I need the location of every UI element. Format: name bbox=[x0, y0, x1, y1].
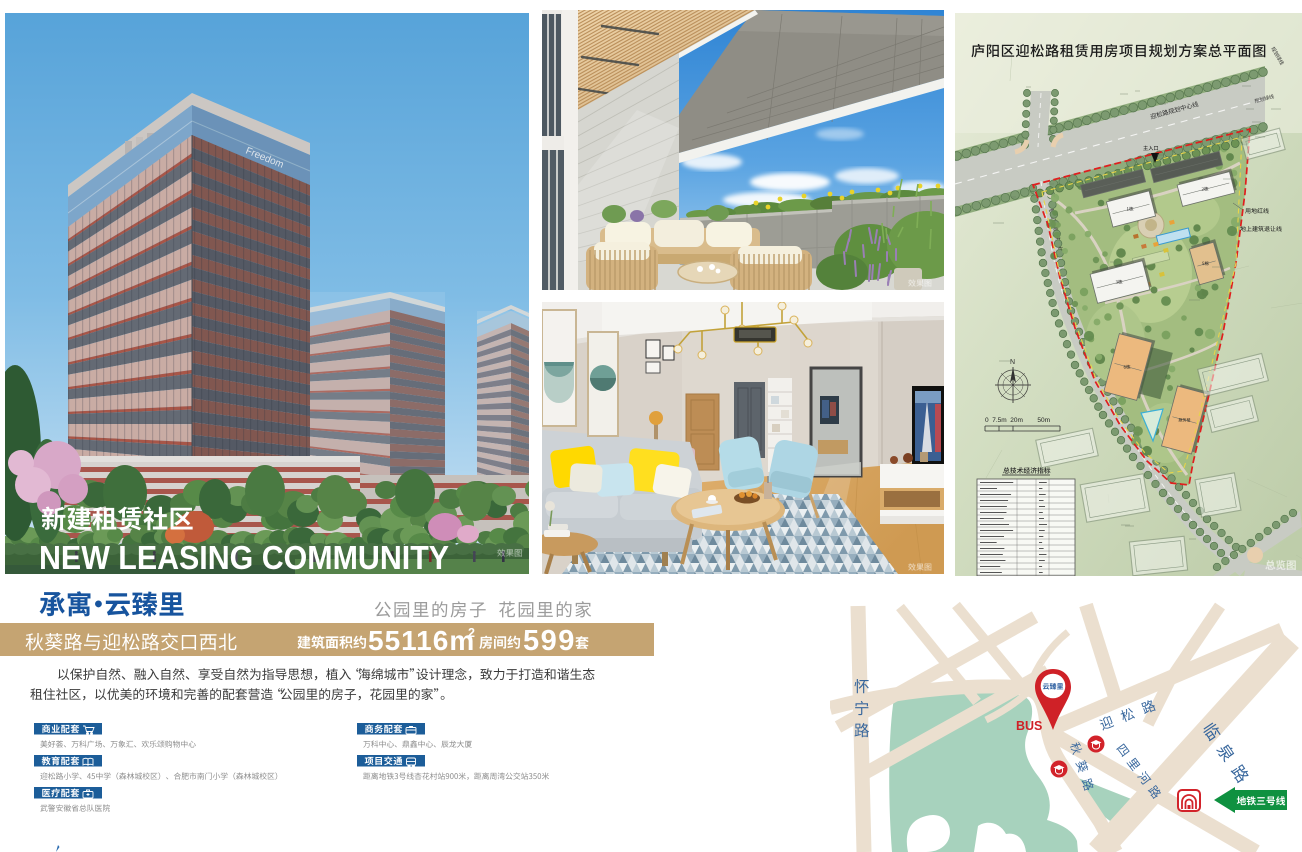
svg-text:NEW LEASING COMMUNITY: NEW LEASING COMMUNITY bbox=[39, 540, 449, 574]
svg-text:N: N bbox=[1010, 359, 1015, 366]
svg-text:599: 599 bbox=[523, 625, 576, 657]
svg-text:BUS: BUS bbox=[1016, 719, 1042, 733]
svg-text:55116m: 55116m bbox=[368, 625, 475, 656]
svg-text:2: 2 bbox=[468, 626, 475, 640]
svg-text:0 7.5m 20m 50m: 0 7.5m 20m 50m bbox=[985, 417, 1050, 424]
